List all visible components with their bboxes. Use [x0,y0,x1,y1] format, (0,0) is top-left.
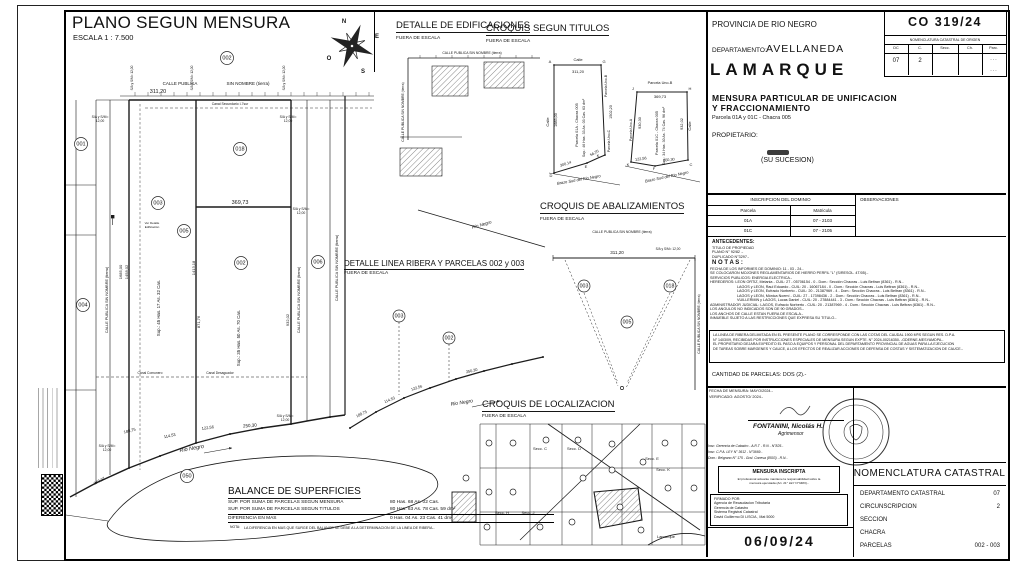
parcel-id-badge [638,527,644,533]
parcel-id-badge [569,519,575,525]
panel-title-titulos: CROQUIS SEGUN TITULOS [486,23,609,36]
drawing-label: Calle [545,117,550,127]
operation-parcels: Parcela 01A y 01C - Chacra 005 [712,115,791,121]
drawing-label: 188,75 [123,426,137,434]
province-label: PROVINCIA DE RIO NEGRO [712,20,817,29]
parcel-id-label: 002 [236,261,245,267]
drawing-label: Edificación [145,225,160,229]
panel-title-abalizamientos: CROQUIS DE ABALIZAMIENTOS [540,201,684,214]
origin-col-dc: DC [884,46,908,50]
drawing-label: H [689,86,692,91]
panel-sub-edificaciones: FUERA DE ESCALA [396,36,440,41]
origin-val-parc-dots: - - - [982,67,1005,72]
parcel-id-badge [691,485,697,491]
origin-title: NOMENCLATURA CATASTRAL DE ORIGEN [884,38,1006,42]
parcel-id-badge [484,524,490,530]
dominio-top-line [706,193,1006,195]
nomenclatura-row-label: DEPARTAMENTO CATASTRAL [860,491,945,497]
drawing-label: N [342,19,346,25]
mensura-inscripta-title: MENSURA INSCRIPTA [719,469,839,475]
drawing-label: Rio Negro [471,219,492,230]
drawing-label: Secc. E [645,456,659,461]
drawing-label: 1502,20 [609,105,613,119]
surveyor-address: Dom.: Belgrano N° 175 - Gral. Conesa (85… [708,456,788,460]
origin-val-parc-dots: - - - [982,56,1005,61]
nomenclatura-row-value: 002 - 003 [950,543,1000,549]
surveyor-title: Agrimensor [778,431,804,437]
balance-row-value: 0 Has. 04 As. 23 Cas. 41 dm² [390,516,453,521]
balance-nota-label: NOTA: [230,525,240,529]
parcel-id-badge [580,475,586,481]
drawing-label: Canal Desaguador [206,371,234,375]
drawing-label: 12,00 [297,211,306,215]
drawing-label: 250,30 [243,422,258,428]
panel-title-ribera: DETALLE LINEA RIBERA Y PARCELAS 002 y 00… [344,259,524,270]
drawing-label: Secc. K [656,467,670,472]
parcel-id-badge [486,440,492,446]
parcel-id-label: 003 [395,314,404,320]
parcel-id-label: 006 [313,260,322,266]
parcel-id-badge [609,441,615,447]
note-line: INMUEBLE SUJETO A LAS RESTRICCIONES QUE … [710,316,1004,320]
balance-divider [228,522,554,523]
owner-succession: (SU SUCESION) [761,157,814,164]
balance-row-value: 80 Has. 68 As. 02 Cas. [390,500,439,505]
parcel-id-badge [537,524,543,530]
mensura-inscripta-line: mensura ejecutada (Art. 21° LEY N°3483).… [719,481,839,485]
drawing-label: CALLE PUBLICA SIN NOMBRE (tierra) [592,230,651,234]
panel-sub-ribera: FUERA DE ESCALA [344,271,388,276]
origin-col-c: C. [908,46,932,50]
registration-date: 06/09/24 [706,533,853,549]
drawing-label: 122,56 [635,156,647,162]
drawing-label: Rio Negro [450,398,473,407]
drawing-label: 1458,02 [124,264,129,279]
lower-block-top-line [706,386,1006,388]
drawing-label: K [597,153,600,158]
owner-label: PROPIETARIO: [712,132,758,139]
nomenclatura-row-label: SECCION [860,517,887,523]
parcel-id-badge [662,440,668,446]
parcel-id-badge [691,440,697,446]
nomenclatura-row-label: CHACRA [860,530,885,536]
surveyor-registration: Insc: Gerencia de Catastro - A.R.T - R.N… [708,444,783,448]
drawing-label: 932,02 [680,118,684,130]
parcel-id-badge [463,475,469,481]
croquis-titulos-sketch [549,64,700,185]
drawing-label: 311,20 [610,250,624,255]
compass-rose-icon [322,16,382,76]
drawing-label: 12,00 [281,418,290,422]
drawing-label: 311,20 [150,89,166,95]
drawing-label: SIN NOMBRE (tierra) [226,81,270,86]
drawing-label: C [690,162,693,167]
panel-sub-localizacion: FUERA DE ESCALA [482,414,526,419]
mensura-inscripta-box: MENSURA INSCRIPTA El profesional actuant… [718,466,840,493]
parcel-id-label: 003 [580,284,589,290]
panel-sub-abalizamientos: FUERA DE ESCALA [540,217,584,222]
parcel-id-badge [609,467,615,473]
nomenclatura-row-label: PARCELAS [860,543,892,549]
balance-title: BALANCE DE SUPERFICIES [228,486,361,499]
parcel-id-badge [543,437,549,443]
drawing-label: G [602,59,605,64]
drawing-label: CALLE PUBLICA SIN NOMBRE (tierra) [297,266,301,333]
drawing-label: 311,20 [572,69,585,74]
signed-by-line: David Guillermo DI LISCIA , Mat 5000 [714,515,844,520]
drawing-label: 930,30 [638,117,642,129]
origin-val-c: 2 [908,58,932,64]
panel-title-localizacion: CROQUIS DE LOCALIZACION [482,399,615,412]
drawing-label: E [375,34,379,40]
origin-line [884,35,1006,36]
drawing-label: 12,00 [96,119,105,123]
drawing-label: CALLE PUBLICA SIN NOMBRE (tierra) [442,51,501,55]
plan-number: CO 319/24 [884,15,1006,29]
drawing-label: Sup.: 34 Has. 30 As. 74 Cas. 96 dm² [662,106,666,165]
nomenclatura-top-line [853,462,1006,463]
origin-val-dc: 07 [884,58,908,64]
nomenclatura-row-value: 07 [950,491,1000,497]
drawing-label: S/A y S/M= 12,00 [282,65,286,90]
drawing-label: 12,00 [103,448,112,452]
drawing-label: 122,56 [201,424,215,431]
ribera-note-box: LA LINEA DE RIBERA DELIMITADA EN EL PRES… [709,330,1005,363]
sheet-title: PLANO SEGUN MENSURA [72,13,290,33]
drawing-label: Canal Comunero [138,371,163,375]
dominio-observaciones: OBSERVACIONES [860,197,899,202]
drawing-label: 1413,18 [191,260,196,275]
verified-date-line: VERIFICADO: AGOSTO/ 2024.- [709,395,763,399]
parcel-id-badge [617,504,623,510]
dominio-row-parcela: 01A [706,218,790,223]
drawing-label: 871,76 [196,315,201,328]
drawing-label: 250,30 [663,157,675,162]
drawing-label: 369,73 [232,200,249,206]
dominio-col-parcela: Parcela [706,208,790,213]
drawing-label: J [632,86,634,91]
parcel-id-badge [486,489,492,495]
survey-date-line: FECHA DE MENSURA: MAYO/2024.- [709,389,773,393]
drawing-label: 114,53 [163,432,176,440]
drawing-label: Sup.: 45 Has. 17 As. 32 Cas. [156,280,161,336]
drawing-label: 369,73 [654,94,667,99]
main-plan-lines [66,92,438,541]
drawing-label: Calle [573,57,583,62]
drawing-label: Calle [687,121,692,131]
dominio-col-line [790,205,791,236]
dominio-line [706,205,855,206]
drawing-label: S [361,69,365,75]
drawing-label: Parcela Uno-B [604,74,608,97]
drawing-label: 1685,00 [554,113,558,127]
drawing-label: O [327,56,332,62]
balance-row-label: DIFERENCIA EN MAS [228,516,277,521]
origin-col-secc: Secc. [932,46,958,50]
drawing-label: 300,14 [560,160,572,167]
drawing-label: 188,75 [355,410,367,419]
antecedentes-line: DUPLICADO N°3297.- [712,255,749,259]
drawing-label: CALLE PUBLICA SIN NOMBRE (tierra) [105,266,109,333]
drawing-label: K [627,162,630,167]
parcel-id-label: 018 [666,284,675,290]
drawing-label: Secc. J [521,510,534,515]
locality-name: LAMARQUE [710,60,848,80]
signed-by-box: FIRMADO POR: Agencia de Recaudacion Trib… [710,494,848,526]
drawing-label: Lamarque [657,534,676,539]
drawing-label: A [549,59,552,64]
balance-row-label: SUP. POR SUMA DE PARCELAS SEGUN MENSURA [228,500,344,505]
origin-line [884,53,1006,54]
drawing-label: D [550,173,553,178]
balance-divider [228,514,554,515]
right-panel-divider [706,10,708,557]
parcel-id-badge [510,489,516,495]
drawing-label: Secc. C [533,446,547,451]
origin-col-line [932,44,933,76]
dominio-line [706,226,855,227]
operation-line-2: Y FRACCIONAMIENTO [712,103,811,113]
drawing-label: Brazo Sud del Rio Negro [557,173,602,186]
surveyor-registration: Insc: C.P.A. LEY N° 3612 - N°3669.- [708,450,762,454]
drawing-label: S/A y S/M= 12,00 [656,247,681,251]
nomenclatura-row-label: CIRCUNSCRIPCION [860,504,917,510]
drawing-label: 932,02 [285,313,290,326]
drawing-label: Parcela 01A - Chacra 005 [575,103,579,146]
panel-sub-titulos: FUERA DE ESCALA [486,39,530,44]
dominio-row-parcela: 01C [706,228,790,233]
drawing-label: Canal Secundario I-7sur [212,102,249,106]
drawing-label: CALLE PUBLICA SIN NOMBRE (tierra) [335,234,339,301]
parcel-id-label: 005 [179,229,188,235]
department-label: DEPARTAMENTO: [712,47,767,54]
sheet-scale: ESCALA 1 : 7.500 [73,33,133,42]
parcel-id-label: 018 [235,147,244,153]
drawing-label: 1685,00 [118,264,123,279]
parcel-id-badge [575,437,581,443]
balance-nota: LA DIFERENCIA EN MAS QUE SURGE DEL BALAN… [244,526,435,530]
drawing-label: Secc. D [567,446,581,451]
parcel-id-badge [640,459,646,465]
drawing-label: E [585,164,588,169]
edificaciones-sketch [400,55,545,247]
drawing-label: CALLE PUBLICA SIN NOMBRE (tierra) [697,294,701,353]
balance-row-value: 80 Has. 63 As. 78 Cas. 59 dm² [390,507,455,512]
parcel-id-label: 003 [153,201,162,207]
drawing-label: Sup.: 46 Has. 33 As. 03 Cas. 63 dm² [582,98,586,157]
nomenclatura-title-line [853,485,1006,486]
parcel-id-badge [510,440,516,446]
drawing-label: 122,56 [411,384,423,391]
surveyor-name: FONTANINI, Nicolás H. [753,423,823,430]
drawing-label: 243,97 [93,475,107,486]
drawing-label: Sup.: 35 Has. 50 As. 70 Cas. [236,310,241,366]
dominio-col-matricula: Matricula [790,208,855,213]
nomenclatura-title: NOMENCLATURA CATASTRAL [853,468,1006,479]
drawing-label: Secc. H [495,510,509,515]
balance-row-label: SUP. POR SUMA DE PARCELAS SEGUN TITULOS [228,507,340,512]
title-box-right-border [374,10,375,72]
drawing-label: S/A y S/M= 12,00 [130,65,134,90]
origin-line [884,44,1006,45]
operation-line-1: MENSURA PARTICULAR DE UNIFICACION [712,93,897,103]
dominio-row-matricula: 07 - 2105 [790,228,855,233]
parcel-id-badge [665,485,671,491]
parcel-id-label: 005 [623,320,632,326]
signature-rule [748,420,844,421]
antecedentes-line: TITULO DE PROPIEDAD [712,246,754,250]
nomenclatura-row-value: 2 [950,504,1000,510]
dominio-row-matricula: 07 - 2103 [790,218,855,223]
date-box-top-line [706,527,853,528]
drawing-label: Parcela Uno-A [629,118,633,141]
parcel-id-label: 004 [78,303,87,309]
owner-name-redacted [767,150,789,155]
parcel-id-label: 002 [222,56,231,62]
drawing-label: Parcela Uno-C [607,129,611,152]
drawing-label: Parcela Uno-B [648,81,673,85]
notes-title: N O T A S : [712,260,743,266]
parcel-id-label: 001 [76,142,85,148]
dominio-title: INSCRIPCION DEL DOMINIO [706,197,855,202]
notes-block: FECHA DE LOS INFORMES DE DOMINIO: 11 - 0… [710,267,1004,320]
ribera-note-line: DE TAREAS SOBRE MARGENES Y CAUCE, A LOS … [713,347,1001,352]
origin-col-ch: Ch. [958,46,982,50]
origin-col-parc: Parc. [982,46,1005,50]
dominio-bottom-line [706,236,1006,237]
antecedentes-title: ANTECEDENTES: [712,239,755,245]
origin-col-line [958,44,959,76]
drawing-label: Rio Negro [179,444,204,454]
dominio-col-line [855,195,856,236]
drawing-label: CALLE PUBLICA SIN NOMBRE (tierra) [401,82,405,141]
parcel-id-label: 050 [182,474,191,480]
parcel-id-label: 002 [445,336,454,342]
department-value: AVELLANEDA [766,43,844,55]
survey-plan-sheet: CALLE PUBLICASIN NOMBRE (tierra)311,2036… [0,0,1024,565]
drawing-label: Parcela 01C - Chacra 005 [655,111,659,155]
parcel-count: CANTIDAD DE PARCELAS: DOS (2).- [712,372,806,378]
antecedentes-line: PLANO N° 92/82 .- [712,250,743,254]
drawing-label: 12,00 [284,119,293,123]
dominio-line [706,215,855,216]
drawing-label: S/A y S/M= 12,00 [190,65,194,90]
